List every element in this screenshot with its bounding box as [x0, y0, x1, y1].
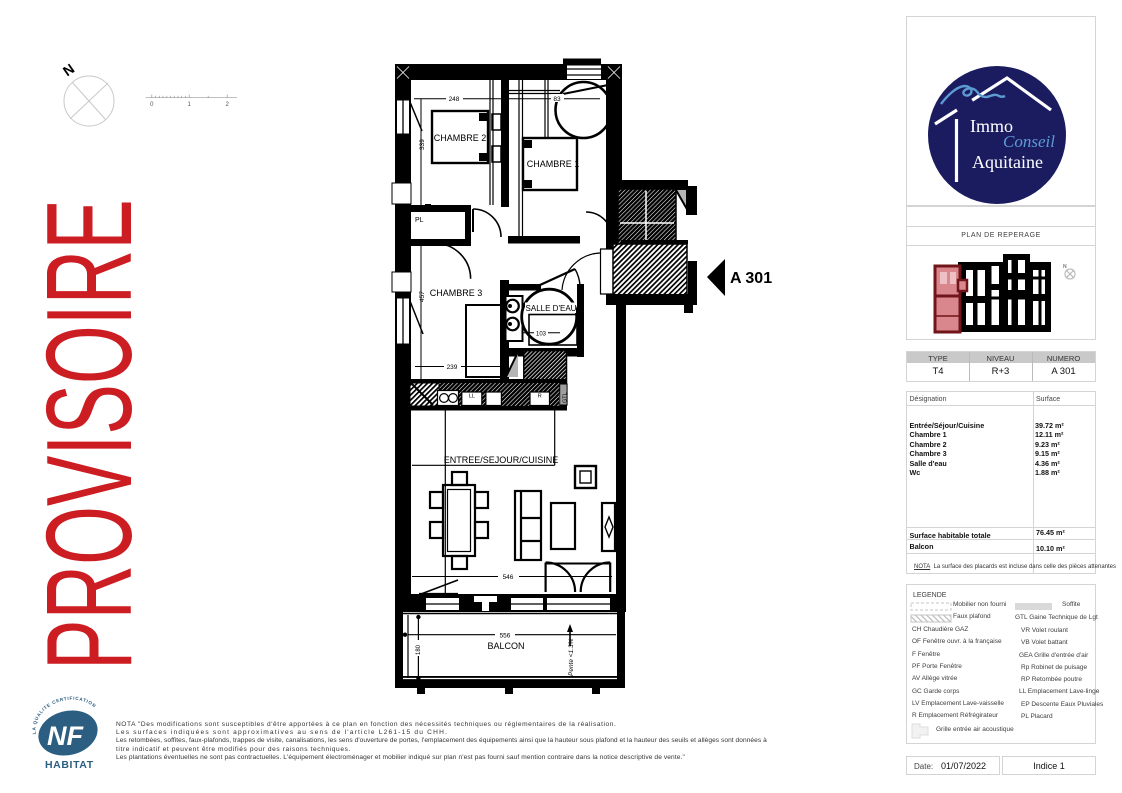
svg-text:HABITAT: HABITAT	[45, 759, 94, 771]
svg-text:ENTREE/SEJOUR/CUISINE: ENTREE/SEJOUR/CUISINE	[444, 455, 559, 465]
svg-text:BALCON: BALCON	[487, 641, 524, 651]
svg-text:CHAMBRE 3: CHAMBRE 3	[430, 288, 483, 298]
svg-text:CHAMBRE 1: CHAMBRE 1	[527, 159, 580, 169]
svg-text:103: 103	[536, 332, 547, 338]
svg-text:239: 239	[447, 364, 458, 371]
svg-text:339: 339	[419, 139, 426, 150]
svg-text:556: 556	[500, 633, 511, 640]
svg-text:Pente <1.3%: Pente <1.3%	[568, 638, 575, 676]
svg-text:CHAMBRE 2: CHAMBRE 2	[434, 133, 487, 143]
svg-text:0: 0	[150, 102, 154, 108]
svg-text:1: 1	[188, 102, 192, 108]
svg-text:PL: PL	[415, 217, 424, 224]
svg-text:SALLE D'EAU: SALLE D'EAU	[526, 304, 577, 313]
svg-text:2: 2	[226, 102, 230, 108]
svg-text:248: 248	[449, 96, 460, 103]
svg-text:LL: LL	[469, 394, 475, 400]
svg-text:83: 83	[553, 96, 561, 103]
svg-text:A 301: A 301	[730, 270, 772, 287]
svg-text:180: 180	[416, 644, 422, 655]
svg-text:457: 457	[419, 291, 426, 302]
svg-text:GTL: GTL	[563, 392, 569, 403]
svg-text:NF: NF	[47, 721, 84, 751]
svg-text:R: R	[538, 394, 542, 400]
svg-text:N: N	[60, 60, 77, 79]
svg-text:546: 546	[503, 574, 514, 581]
svg-text:PROVISOIRE: PROVISOIRE	[20, 199, 157, 670]
